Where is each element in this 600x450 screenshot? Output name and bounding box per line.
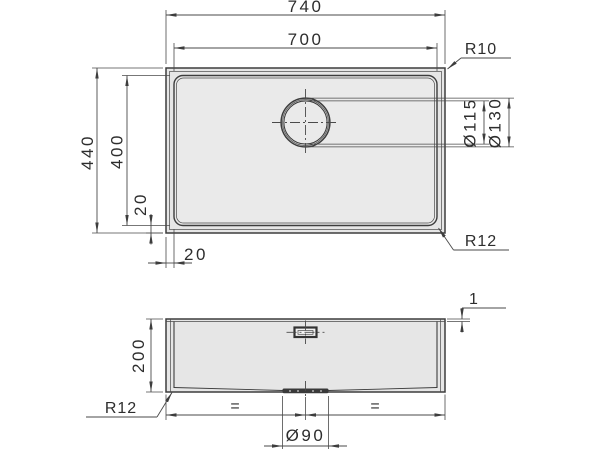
dim-label-440: 440 [78,134,97,170]
front-view: 1 200 R12 = = [86,291,506,449]
dim-bowl-width: 700 [174,30,437,71]
equal-symbol-right: = [370,398,379,415]
dim-label-dia90: Ø90 [286,426,326,445]
top-view: 740 700 440 400 20 [78,0,514,268]
dim-label-200: 200 [129,337,148,373]
dim-equal-spacing: = = [166,395,445,421]
label-r10: R10 [465,41,497,58]
dim-bottom-offset: 20 [131,192,163,244]
dim-label-700: 700 [288,30,324,49]
sink-dimension-drawing: 740 700 440 400 20 [0,0,600,450]
drawing-svg: 740 700 440 400 20 [0,0,600,450]
dim-label-dia115: Ø115 [461,97,480,147]
label-r12-front: R12 [105,400,137,417]
equal-symbol-left: = [230,398,239,415]
dim-left-offset: 20 [148,229,208,268]
label-r12-top: R12 [465,233,497,250]
leader-r10: R10 [448,41,512,69]
dim-label-740: 740 [288,0,324,16]
dim-label-20-vertical: 20 [131,192,150,216]
dim-rim-height: 1 [447,291,506,333]
dim-label-400: 400 [108,133,127,169]
dim-label-dia130: Ø130 [486,97,505,149]
leader-r12-top-view: R12 [439,228,510,250]
dim-label-20-horizontal: 20 [184,245,208,264]
dim-bowl-height: 200 [129,319,163,392]
leader-r12-front-view: R12 [86,393,172,418]
dim-label-1: 1 [469,291,479,308]
